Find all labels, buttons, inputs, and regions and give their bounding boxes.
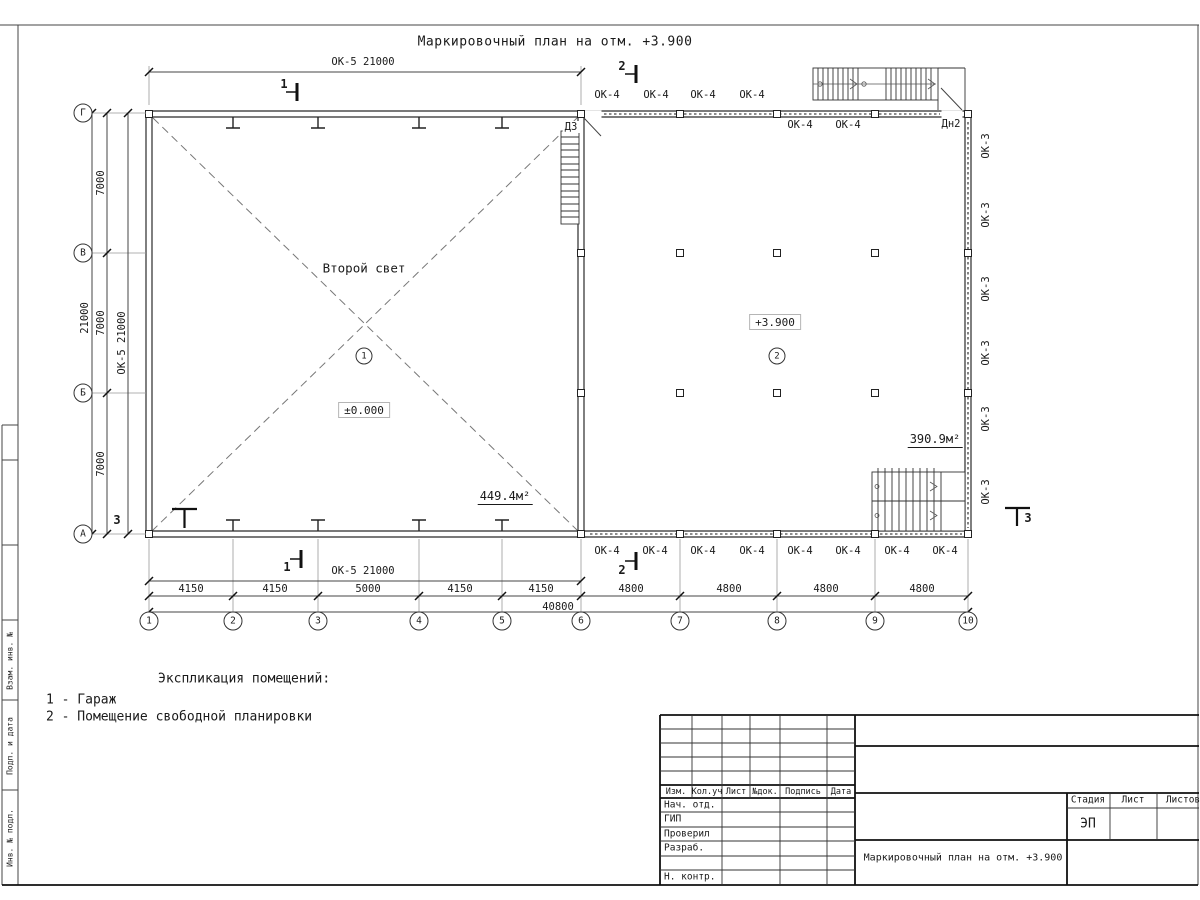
room2-area: 390.9м² bbox=[908, 432, 963, 448]
room1-second-light-label: Второй свет bbox=[323, 261, 406, 276]
titleblock-row-nach-otd: Нач. отд. bbox=[664, 800, 715, 811]
section-marker-3-left: 3 bbox=[113, 513, 120, 527]
window-label-ok3: ОК-3 bbox=[980, 276, 992, 301]
axis-number-circle: 8 bbox=[768, 612, 787, 631]
axis-number-circle: 6 bbox=[572, 612, 591, 631]
axis-number-circle: 10 bbox=[959, 612, 978, 631]
window-label-ok4: ОК-4 bbox=[932, 545, 957, 557]
axis-number-circle: 2 bbox=[224, 612, 243, 631]
dim-label-top-ok5: ОК-5 21000 bbox=[331, 56, 394, 68]
window-label-ok4: ОК-4 bbox=[884, 545, 909, 557]
dim-label-21000: 21000 bbox=[79, 302, 91, 334]
titleblock-col-sign: Подпись bbox=[785, 787, 821, 797]
titleblock-col-list: Лист bbox=[726, 787, 746, 797]
window-label-ok4: ОК-4 bbox=[835, 119, 860, 131]
titleblock-stage-label: Стадия bbox=[1071, 795, 1105, 806]
window-label-ok4: ОК-4 bbox=[787, 119, 812, 131]
dim-label-7000: 7000 bbox=[95, 451, 107, 476]
dim-label-bottom-ok5: ОК-5 21000 bbox=[331, 565, 394, 577]
titleblock-row-gip: ГИП bbox=[664, 814, 681, 825]
window-label-ok4: ОК-4 bbox=[787, 545, 812, 557]
axis-number-circle: 4 bbox=[410, 612, 429, 631]
window-label-ok4: ОК-4 bbox=[594, 545, 619, 557]
titleblock-stage-list: Лист bbox=[1122, 795, 1145, 806]
axis-letter-circle: Г bbox=[74, 104, 93, 123]
door-label-d3: Д3 bbox=[563, 121, 580, 133]
window-label-ok4: ОК-4 bbox=[739, 89, 764, 101]
titleblock-row-nkontr: Н. контр. bbox=[664, 872, 715, 883]
window-label-ok4: ОК-4 bbox=[643, 89, 668, 101]
drawing-sheet: Маркировочный план на отм. +3.900 ОК-5 2… bbox=[0, 0, 1200, 900]
titleblock-col-doc: №док. bbox=[752, 787, 778, 797]
room2-number: 2 bbox=[769, 348, 786, 365]
door-label-dn2: Дн2 bbox=[940, 118, 963, 130]
window-label-ok4: ОК-4 bbox=[739, 545, 764, 557]
window-label-ok4: ОК-4 bbox=[594, 89, 619, 101]
window-label-ok4: ОК-4 bbox=[690, 545, 715, 557]
titleblock-col-date: Дата bbox=[831, 787, 851, 797]
sheet-title: Маркировочный план на отм. +3.900 bbox=[418, 35, 693, 50]
window-label-ok3: ОК-3 bbox=[980, 202, 992, 227]
dim-label-5000: 5000 bbox=[355, 583, 380, 595]
stamp-podp-data: Подп. и дата bbox=[6, 717, 15, 775]
titleblock-doc-title: Маркировочный план на отм. +3.900 bbox=[864, 853, 1063, 864]
dim-label-40800: 40800 bbox=[542, 601, 574, 613]
section-marker-1-top: 1 bbox=[280, 77, 287, 91]
dim-label-4150: 4150 bbox=[447, 583, 472, 595]
dim-label-4150: 4150 bbox=[528, 583, 553, 595]
room1-area: 449.4м² bbox=[478, 489, 533, 505]
axis-letter-circle: А bbox=[74, 525, 93, 544]
legend-title: Экспликация помещений: bbox=[158, 672, 330, 687]
window-label-ok4: ОК-4 bbox=[835, 545, 860, 557]
axis-number-circle: 3 bbox=[309, 612, 328, 631]
titleblock-col-kol: Кол.уч bbox=[692, 787, 723, 797]
section-marker-3-right: 3 bbox=[1024, 511, 1031, 525]
window-label-ok3: ОК-3 bbox=[980, 406, 992, 431]
dim-label-4150: 4150 bbox=[178, 583, 203, 595]
window-label-ok3: ОК-3 bbox=[980, 479, 992, 504]
legend-item-1: 1 - Гараж bbox=[46, 693, 116, 708]
stamp-vzam-inv: Взам. инв. № bbox=[6, 632, 15, 690]
dim-label-4800: 4800 bbox=[909, 583, 934, 595]
axis-letter-circle: Б bbox=[74, 384, 93, 403]
titleblock-row-proveril: Проверил bbox=[664, 829, 710, 840]
room1-elevation: ±0.000 bbox=[338, 402, 390, 418]
axis-number-circle: 5 bbox=[493, 612, 512, 631]
dim-label-7000: 7000 bbox=[95, 170, 107, 195]
dim-label-4800: 4800 bbox=[618, 583, 643, 595]
titleblock-row-razrab: Разраб. bbox=[664, 843, 704, 854]
dim-label-4800: 4800 bbox=[813, 583, 838, 595]
room1-number: 1 bbox=[356, 348, 373, 365]
titleblock-stage-value: ЭП bbox=[1080, 817, 1096, 832]
axis-number-circle: 7 bbox=[671, 612, 690, 631]
section-marker-2-top: 2 bbox=[618, 59, 625, 73]
section-marker-1-bottom: 1 bbox=[283, 560, 290, 574]
axis-letter-circle: В bbox=[74, 244, 93, 263]
window-label-ok3: ОК-3 bbox=[980, 340, 992, 365]
titleblock-stage-lists: Листов bbox=[1166, 795, 1200, 806]
window-label-ok4: ОК-4 bbox=[690, 89, 715, 101]
titleblock-col-izm: Изм. bbox=[666, 787, 686, 797]
dim-label-7000: 7000 bbox=[95, 310, 107, 335]
axis-number-circle: 9 bbox=[866, 612, 885, 631]
dim-label-4150: 4150 bbox=[262, 583, 287, 595]
window-label-ok3: ОК-3 bbox=[980, 133, 992, 158]
legend-item-2: 2 - Помещение свободной планировки bbox=[46, 710, 312, 725]
dim-label-left-ok5: ОК-5 21000 bbox=[116, 311, 128, 374]
stamp-inv-podl: Инв. № подл. bbox=[6, 809, 15, 867]
room2-elevation: +3.900 bbox=[749, 314, 801, 330]
dim-label-4800: 4800 bbox=[716, 583, 741, 595]
section-marker-2-bottom: 2 bbox=[618, 563, 625, 577]
window-label-ok4: ОК-4 bbox=[642, 545, 667, 557]
plan-linework bbox=[0, 0, 1200, 900]
axis-number-circle: 1 bbox=[140, 612, 159, 631]
